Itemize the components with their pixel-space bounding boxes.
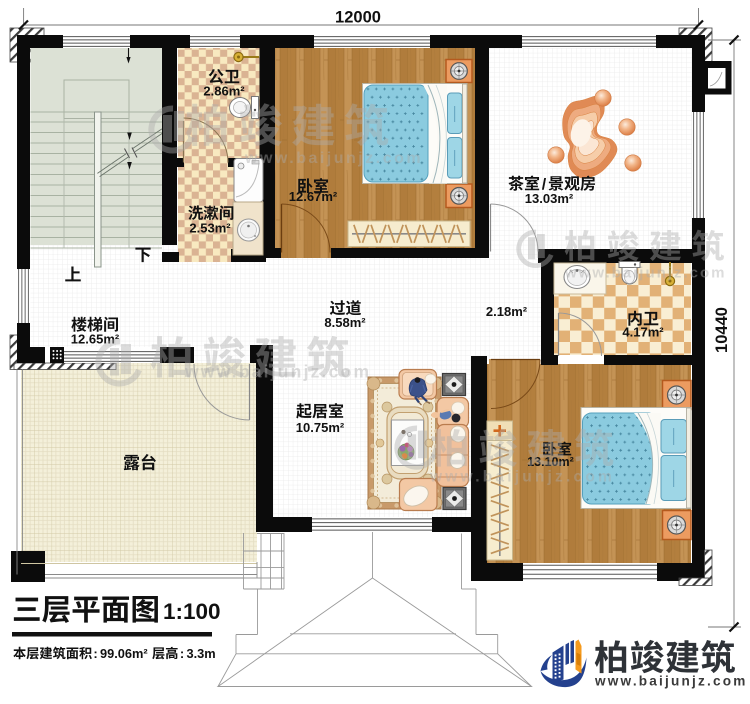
svg-text:12.67m²: 12.67m² bbox=[289, 189, 338, 204]
svg-text:8.58m²: 8.58m² bbox=[324, 315, 366, 330]
svg-text:12000: 12000 bbox=[335, 9, 381, 27]
svg-text::: : bbox=[93, 646, 97, 661]
svg-text:13.03m²: 13.03m² bbox=[525, 191, 574, 206]
svg-text:2.53m²: 2.53m² bbox=[189, 221, 231, 236]
svg-text:www.baijunjz.com: www.baijunjz.com bbox=[429, 469, 615, 486]
svg-text::: : bbox=[180, 646, 184, 661]
svg-text:4.17m²: 4.17m² bbox=[622, 325, 664, 340]
svg-text:10440: 10440 bbox=[713, 307, 731, 353]
svg-text:1:100: 1:100 bbox=[163, 599, 221, 624]
svg-text:99.06m²: 99.06m² bbox=[100, 646, 148, 661]
svg-text:www.baijunjz.com: www.baijunjz.com bbox=[244, 150, 423, 167]
svg-text:3.3m: 3.3m bbox=[187, 646, 216, 661]
svg-text:www.baijunjz.com: www.baijunjz.com bbox=[184, 362, 371, 382]
svg-text:www.baijunjz.com: www.baijunjz.com bbox=[594, 674, 748, 689]
svg-text:10.75m²: 10.75m² bbox=[296, 420, 345, 435]
svg-text:2.86m²: 2.86m² bbox=[203, 84, 245, 99]
svg-text:www.baijunjz.com: www.baijunjz.com bbox=[564, 265, 726, 282]
svg-text:2.18m²: 2.18m² bbox=[486, 304, 528, 319]
